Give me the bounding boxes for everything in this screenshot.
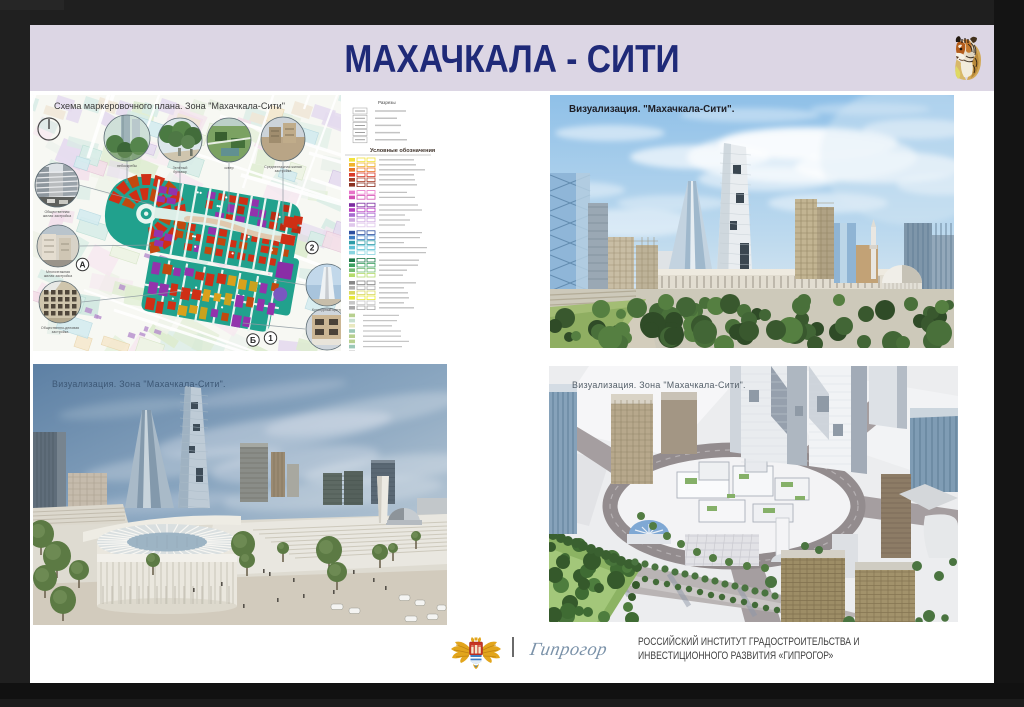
svg-text:2: 2 [310,243,315,253]
svg-text:Разрезы: Разрезы [378,100,396,105]
svg-text:бульвар: бульвар [173,170,187,174]
svg-text:застройка: застройка [275,169,292,173]
svg-text:небоскребы: небоскребы [117,164,137,168]
svg-text:застройка: застройка [52,330,69,334]
svg-text:1: 1 [268,333,273,343]
svg-text:жилая застройка: жилая застройка [44,274,72,278]
svg-text:Условные обозначения: Условные обозначения [370,147,435,154]
svg-text:А: А [80,260,86,270]
svg-text:Визуализация. "Махачкала-Сити": Визуализация. "Махачкала-Сити". [569,104,735,115]
svg-text:сквер: сквер [224,166,233,170]
svg-text:Визуализация. Зона "Махачкала-: Визуализация. Зона "Махачкала-Сити". [572,380,746,390]
svg-text:Схема маркеровочного плана. Зо: Схема маркеровочного плана. Зона "Махачк… [54,101,285,111]
svg-text:Культурный центр: Культурный центр [312,308,342,312]
svg-text:жилая застройка: жилая застройка [43,214,71,218]
svg-text:Б: Б [250,335,256,345]
svg-text:Визуализация. Зона "Махачкала-: Визуализация. Зона "Махачкала-Сити". [52,379,226,389]
